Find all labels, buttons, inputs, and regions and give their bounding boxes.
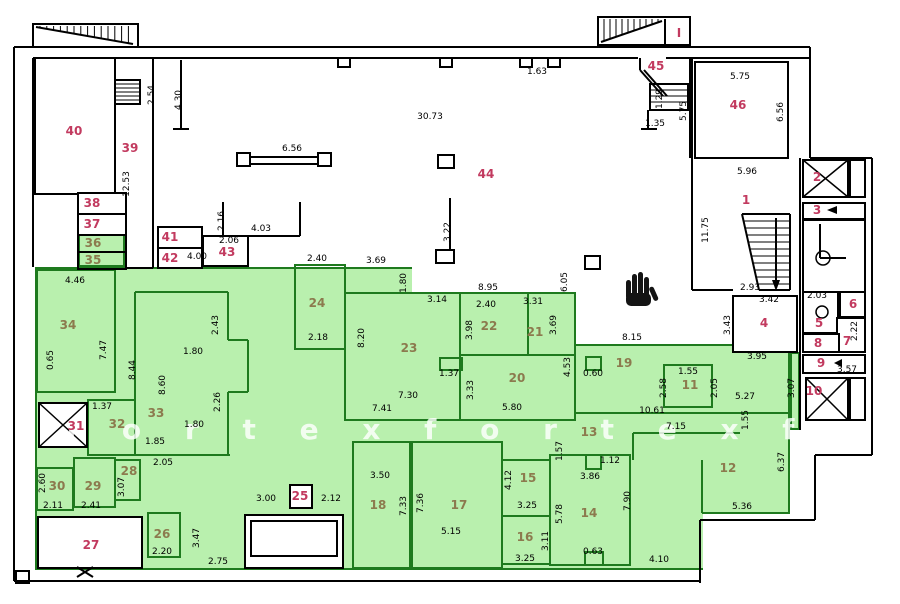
- dimension-label: 3.07: [117, 477, 127, 497]
- dimension-label: 3.25: [515, 554, 535, 564]
- room-number-label: 32: [109, 417, 126, 431]
- dimension-label: 1.12: [600, 456, 620, 466]
- dimension-label: 3.07: [787, 378, 797, 398]
- dimension-label: 3.98: [465, 320, 475, 340]
- dimension-label: 3.43: [723, 315, 733, 335]
- dimension-label: 1.55: [678, 367, 698, 377]
- dimension-label: 1.80: [183, 347, 203, 357]
- dimension-label: 1.63: [527, 67, 547, 77]
- room-number-label: 9: [817, 356, 825, 370]
- room-number-label: 33: [148, 406, 165, 420]
- dimension-label: 2.11: [43, 501, 63, 511]
- dimension-label: 7.15: [666, 422, 686, 432]
- dimension-label: 1.37: [92, 402, 112, 412]
- room-number-label: 6: [849, 297, 857, 311]
- room-number-label: 13: [581, 425, 598, 439]
- dimension-label: 2.18: [308, 333, 328, 343]
- dimension-label: 1.37: [439, 369, 459, 379]
- dimension-label: 2.54: [147, 85, 157, 105]
- room-number-label: 3: [813, 203, 821, 217]
- dimension-label: 2.41: [81, 501, 101, 511]
- dimension-label: 3.11: [541, 531, 551, 551]
- dimension-label: 3.47: [192, 528, 202, 548]
- dimension-label: 2.22: [850, 321, 860, 341]
- room-number-label: 17: [451, 498, 468, 512]
- room-number-label: 34: [60, 318, 77, 332]
- dimension-label: 2.43: [211, 315, 221, 335]
- dimension-label: 8.44: [128, 360, 138, 380]
- dimension-label: 3.14: [427, 295, 447, 305]
- room-number-label: 18: [370, 498, 387, 512]
- room-number-label: 11: [682, 378, 699, 392]
- dimension-label: 3.50: [370, 471, 390, 481]
- dimension-label: 3.25: [517, 501, 537, 511]
- dimension-label: 5.15: [441, 527, 461, 537]
- dimension-label: 1.85: [145, 437, 165, 447]
- dimension-label: 2.06: [219, 236, 239, 246]
- dimension-label: 4.03: [251, 224, 271, 234]
- room-number-label: 45: [648, 59, 665, 73]
- dimension-label: 12.53: [122, 171, 132, 197]
- room-number-label: 16: [517, 530, 534, 544]
- dimension-label: 7.30: [398, 391, 418, 401]
- dimension-label: 3.33: [466, 380, 476, 400]
- dimension-label: 11.75: [701, 217, 711, 243]
- dimension-label: 8.95: [478, 283, 498, 293]
- dimension-label: 4.53: [563, 357, 573, 377]
- dimension-label: 5.27: [735, 392, 755, 402]
- room-number-label: 5: [815, 316, 823, 330]
- dimension-label: 2.05: [710, 378, 720, 398]
- dimension-label: 4.12: [504, 470, 514, 490]
- dimension-label: 2.40: [476, 300, 496, 310]
- room-number-label: 27: [83, 538, 100, 552]
- room-number-label: 29: [85, 479, 102, 493]
- dimension-label: 5.78: [555, 504, 565, 524]
- dimension-label: 2.03: [807, 291, 827, 301]
- dimension-label: 2.12: [321, 494, 341, 504]
- dimension-label: 3.31: [523, 297, 543, 307]
- room-number-label: 19: [616, 356, 633, 370]
- dimension-label: 2.05: [153, 458, 173, 468]
- room-number-label: 42: [162, 251, 179, 265]
- dimension-label: 2.93: [740, 283, 760, 293]
- dimension-label: 2.75: [208, 557, 228, 567]
- dimension-label: 5.36: [732, 502, 752, 512]
- room-number-label: 37: [84, 217, 101, 231]
- dimension-label: 2.20: [152, 547, 172, 557]
- dimension-label: 3.57: [837, 365, 857, 375]
- dimension-label: 5.80: [502, 403, 522, 413]
- room-number-label: 20: [509, 371, 526, 385]
- dimension-label: 1.80: [184, 420, 204, 430]
- dimension-label: 5.75: [730, 72, 750, 82]
- room-number-label: 38: [84, 196, 101, 210]
- room-number-label: 36: [85, 236, 102, 250]
- room-number-label: 10: [806, 384, 823, 398]
- room-number-label: 14: [581, 506, 598, 520]
- dimension-label: 7.41: [372, 404, 392, 414]
- dimension-label: 4.46: [65, 276, 85, 286]
- dimension-label: 7.90: [623, 491, 633, 511]
- room-number-label: 4: [760, 316, 768, 330]
- dimension-label: 1.80: [399, 273, 409, 293]
- dimension-label: 4.10: [649, 555, 669, 565]
- dimension-label: 7.36: [416, 493, 426, 513]
- room-number-label: I: [677, 26, 681, 40]
- dimension-label: 3.00: [256, 494, 276, 504]
- dimension-label: 7.47: [99, 340, 109, 360]
- floor-plan-canvas: f o r t e x f o r t e x f o r 4039383736…: [0, 0, 900, 604]
- room-number-label: 1: [742, 193, 750, 207]
- room-number-label: 8: [814, 336, 822, 350]
- dimension-label: 3.22: [443, 222, 453, 242]
- room-number-label: 25: [292, 489, 309, 503]
- room-number-label: 44: [478, 167, 495, 181]
- dimension-label: 1.57: [555, 441, 565, 461]
- dimension-label: 1.35: [645, 119, 665, 129]
- dimension-label: 2.16: [217, 211, 227, 231]
- dimension-label: 0.60: [583, 369, 603, 379]
- dimension-label: 6.56: [776, 102, 786, 122]
- room-number-label: 43: [219, 245, 236, 259]
- dimension-label: 3.42: [759, 295, 779, 305]
- dimension-label: 1.55: [741, 410, 751, 430]
- room-number-label: 12: [720, 461, 737, 475]
- room-number-label: 28: [121, 464, 138, 478]
- dimension-label: 3.69: [366, 256, 386, 266]
- dimension-label: 4.30: [174, 90, 184, 110]
- room-number-label: 41: [162, 230, 179, 244]
- room-number-label: 21: [527, 325, 544, 339]
- dimension-label: 2.26: [213, 392, 223, 412]
- dimension-label: 8.20: [357, 328, 367, 348]
- dimension-label: 2.60: [38, 473, 48, 493]
- room-number-label: 40: [66, 124, 83, 138]
- dimension-label: 3.86: [580, 472, 600, 482]
- dimension-label: 2.58: [659, 378, 669, 398]
- dimension-label: 3.95: [747, 352, 767, 362]
- room-number-label: 39: [122, 141, 139, 155]
- room-number-label: 26: [154, 527, 171, 541]
- room-number-label: 35: [85, 253, 102, 267]
- dimension-label: 8.60: [158, 375, 168, 395]
- dimension-label: 0.65: [46, 350, 56, 370]
- dimension-label: 6.37: [777, 452, 787, 472]
- dimension-label: 6.05: [560, 272, 570, 292]
- dimension-label: 2.40: [307, 254, 327, 264]
- dimension-label: 8.15: [622, 333, 642, 343]
- dimension-label: 5.75: [679, 101, 689, 121]
- room-number-label: 15: [520, 471, 537, 485]
- dimension-label: 6.56: [282, 144, 302, 154]
- room-number-label: 31: [68, 419, 85, 433]
- labels-layer: 40393837363534414243444546I1234567891011…: [0, 0, 900, 604]
- dimension-label: 7.33: [399, 496, 409, 516]
- room-number-label: 24: [309, 296, 326, 310]
- dimension-label: 4.00: [187, 252, 207, 262]
- dimension-label: 30.73: [417, 112, 443, 122]
- dimension-label: 10.61: [639, 406, 665, 416]
- room-number-label: 22: [481, 319, 498, 333]
- dimension-label: 5.96: [737, 167, 757, 177]
- dimension-label: 1.29: [655, 89, 665, 109]
- room-number-label: 2: [813, 170, 821, 184]
- dimension-label: 0.63: [583, 547, 603, 557]
- room-number-label: 30: [49, 479, 66, 493]
- dimension-label: 3.69: [549, 315, 559, 335]
- room-number-label: 46: [730, 98, 747, 112]
- room-number-label: 23: [401, 341, 418, 355]
